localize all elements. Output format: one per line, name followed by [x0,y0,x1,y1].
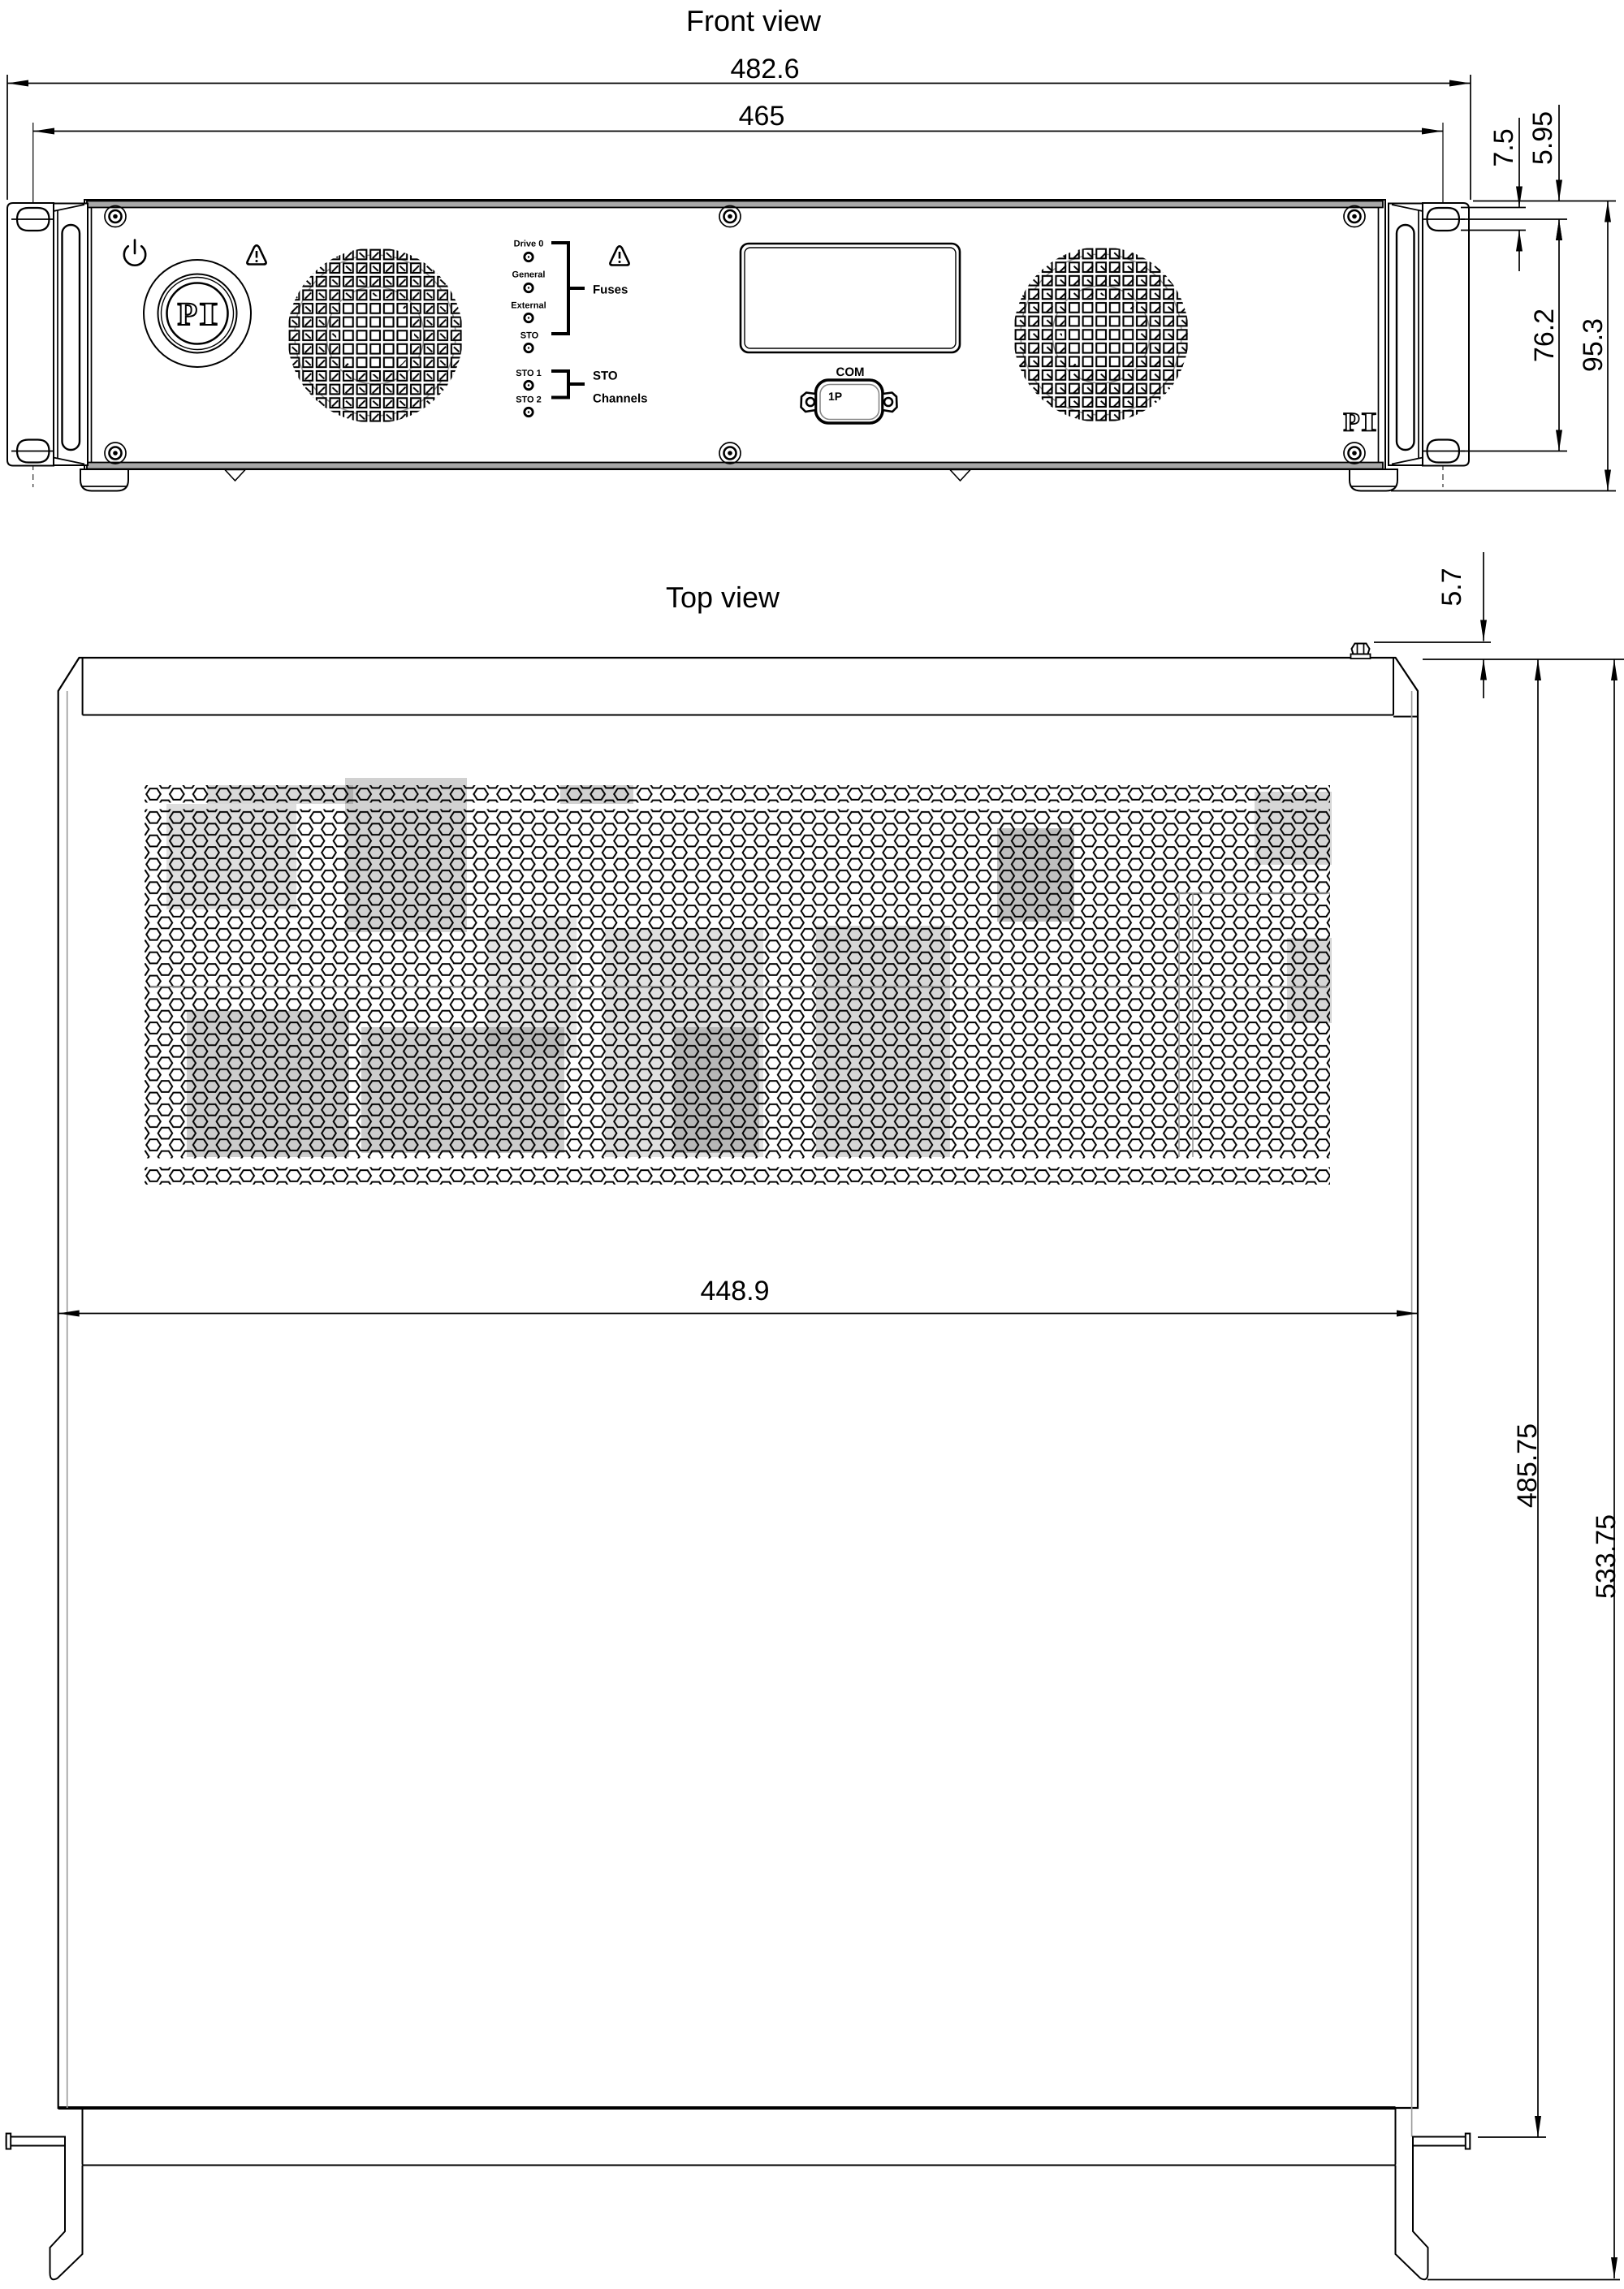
svg-text:482.6: 482.6 [730,54,799,84]
svg-text:STO 2: STO 2 [516,395,542,405]
svg-text:Channels: Channels [593,392,648,406]
svg-text:5.7: 5.7 [1436,568,1467,606]
svg-text:533.75: 533.75 [1591,1514,1622,1599]
svg-text:448.9: 448.9 [700,1276,769,1306]
svg-text:95.3: 95.3 [1578,318,1609,372]
svg-text:STO 1: STO 1 [516,369,542,378]
svg-text:External: External [511,301,546,311]
svg-text:5.95: 5.95 [1527,111,1558,165]
svg-text:7.5: 7.5 [1488,128,1519,166]
svg-text:General: General [512,270,546,280]
svg-text:Drive 0: Drive 0 [514,240,544,249]
svg-text:Fuses: Fuses [593,283,628,297]
svg-text:COM: COM [836,365,865,379]
svg-text:Top view: Top view [666,581,780,614]
svg-text:Front view: Front view [686,4,822,37]
svg-text:465: 465 [739,101,785,132]
svg-text:76.2: 76.2 [1529,309,1560,362]
svg-text:STO: STO [520,331,539,341]
svg-text:STO: STO [593,369,618,383]
svg-text:1P: 1P [828,390,842,403]
